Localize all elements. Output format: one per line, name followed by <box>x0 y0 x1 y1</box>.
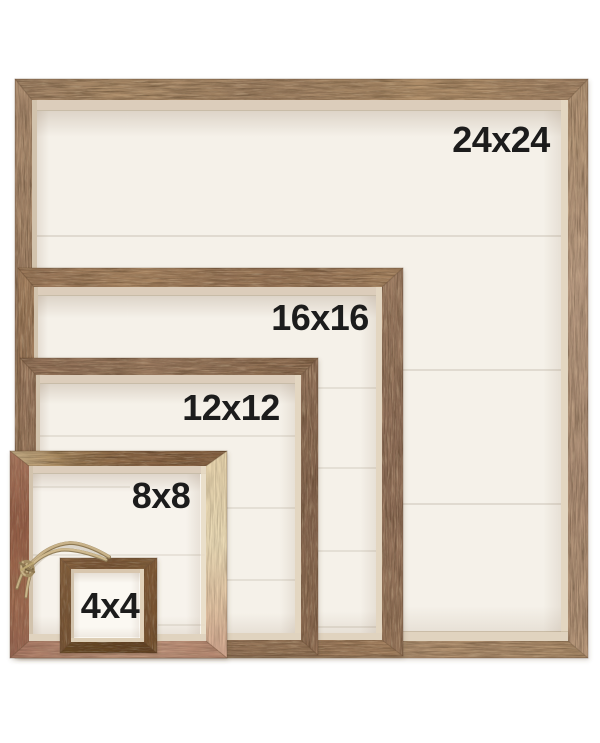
svg-text:4x4: 4x4 <box>81 585 140 626</box>
svg-text:24x24: 24x24 <box>452 119 550 160</box>
svg-text:8x8: 8x8 <box>132 475 191 516</box>
svg-text:12x12: 12x12 <box>182 387 280 428</box>
svg-text:16x16: 16x16 <box>271 297 369 338</box>
